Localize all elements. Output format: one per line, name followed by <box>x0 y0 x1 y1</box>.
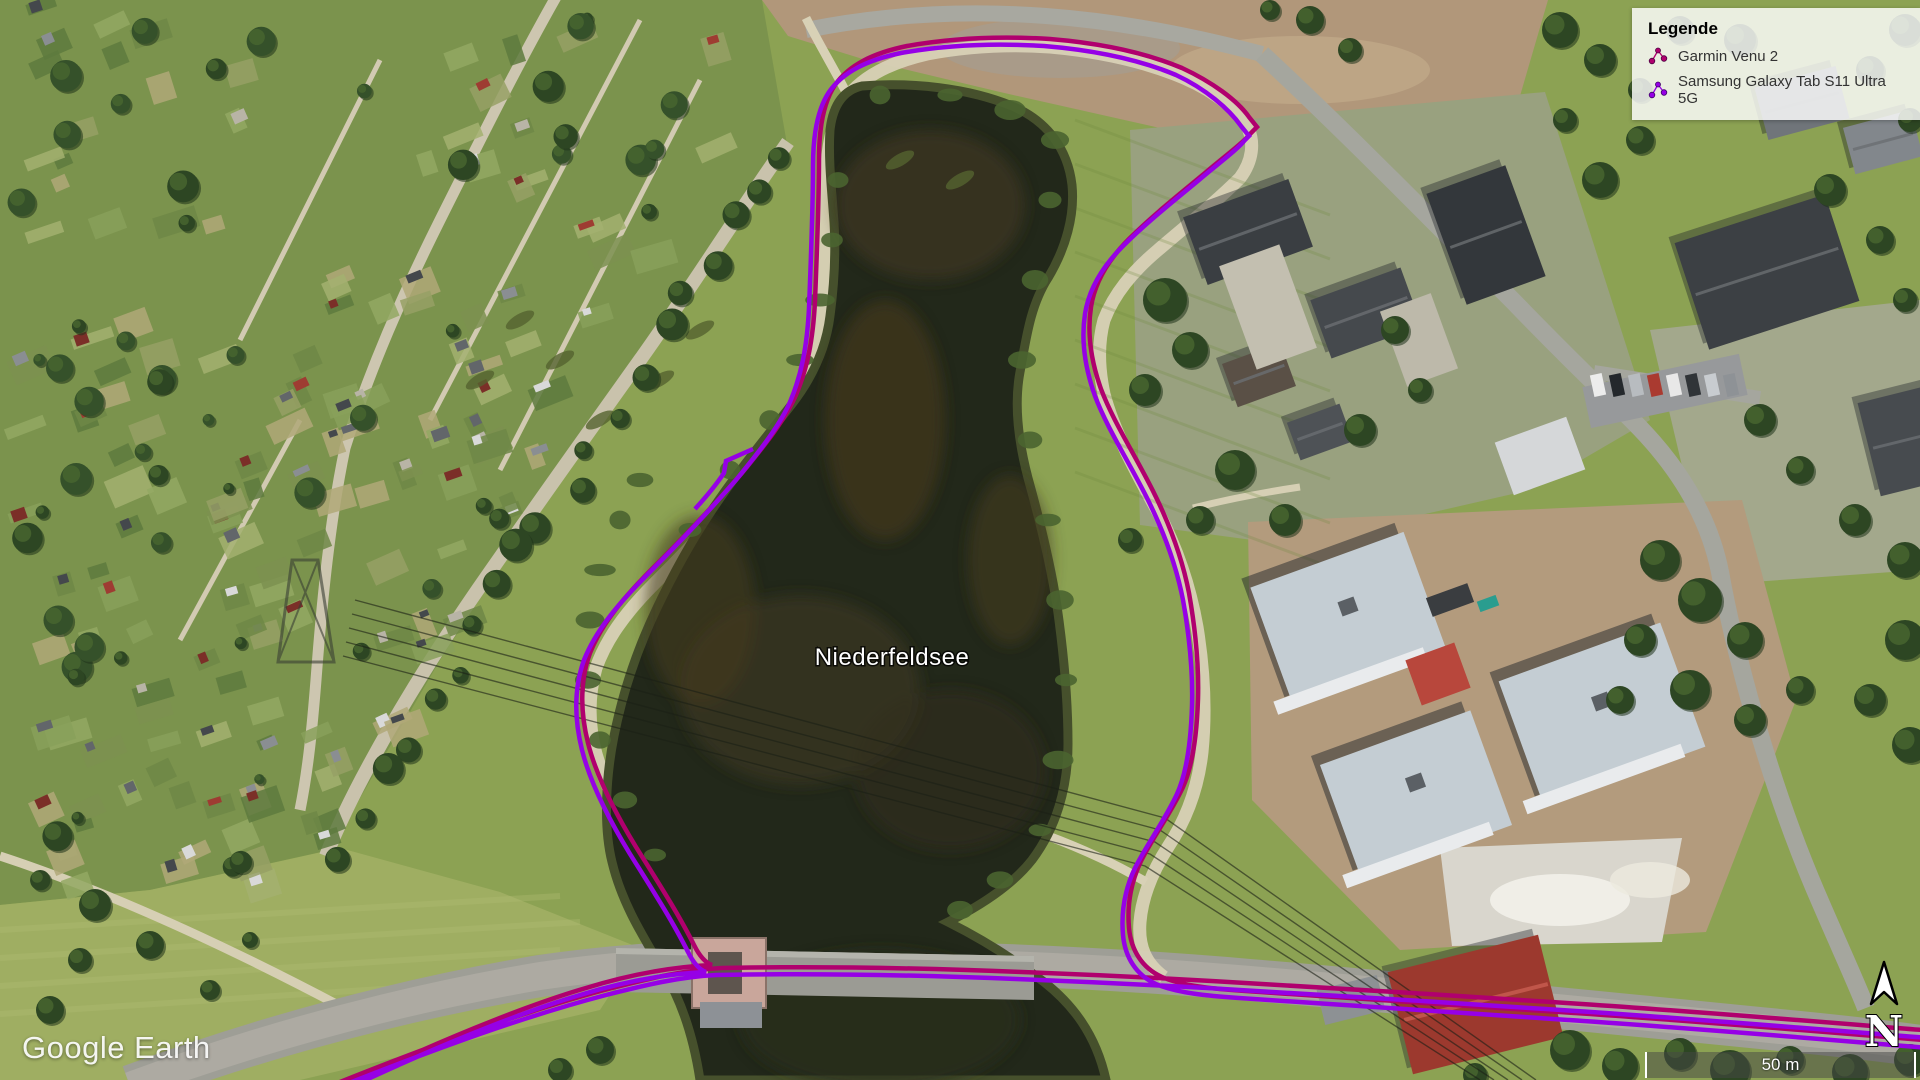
tree-highlight <box>1890 545 1910 565</box>
tree-highlight <box>224 484 230 490</box>
tree-highlight <box>1626 626 1644 644</box>
tree-highlight <box>204 415 211 422</box>
tree-highlight <box>1816 176 1834 194</box>
tree-highlight <box>1746 406 1764 424</box>
tree-highlight <box>150 466 161 477</box>
tree-highlight <box>450 152 467 169</box>
tree-highlight <box>231 853 243 865</box>
tree-highlight <box>1218 453 1240 475</box>
shore-bush <box>1008 351 1036 368</box>
tree-highlight <box>34 355 41 362</box>
shore-bush <box>937 88 962 101</box>
tree-highlight <box>357 810 368 821</box>
tree-highlight <box>38 998 53 1013</box>
tree-highlight <box>725 203 740 218</box>
shore-bush <box>644 849 666 862</box>
tree-highlight <box>46 608 62 624</box>
tree-highlight <box>1841 506 1859 524</box>
tree-highlight <box>202 982 213 993</box>
tree-highlight <box>1585 165 1605 185</box>
tree-highlight <box>1146 281 1170 305</box>
tree-highlight <box>1608 688 1623 703</box>
tree-highlight <box>663 93 678 108</box>
tree-highlight <box>77 389 93 405</box>
tree-highlight <box>81 891 99 909</box>
google-earth-viewport: Niederfeldsee Legende Garmin Venu 2 Sams… <box>0 0 1920 1080</box>
tree-highlight <box>10 191 25 206</box>
shore-bush <box>987 871 1014 888</box>
tree-highlight <box>1175 335 1195 355</box>
tree-highlight <box>646 141 657 152</box>
shore-bush <box>1041 131 1069 149</box>
tree-highlight <box>464 617 475 628</box>
tree-highlight <box>569 15 584 30</box>
legend-item-samsung: Samsung Galaxy Tab S11 Ultra 5G <box>1648 73 1904 107</box>
shore-bush <box>1046 590 1074 610</box>
tree-highlight <box>73 320 81 328</box>
lake-name-label: Niederfeldsee <box>815 644 970 671</box>
tree-highlight <box>572 479 586 493</box>
tree-highlight <box>243 933 252 942</box>
shore-bush <box>584 564 616 576</box>
tree-highlight <box>522 515 539 532</box>
tree-highlight <box>477 499 486 508</box>
tree-highlight <box>749 181 762 194</box>
tree-highlight <box>63 465 81 483</box>
tree-highlight <box>628 147 645 164</box>
tree-highlight <box>136 445 145 454</box>
shore-bush <box>627 473 654 487</box>
legend-title: Legende <box>1648 19 1904 39</box>
north-arrow-icon <box>1871 962 1897 1004</box>
tree-highlight <box>112 95 123 106</box>
tree-highlight <box>180 216 189 225</box>
tree-highlight <box>1188 508 1203 523</box>
tree-highlight <box>1868 228 1883 243</box>
tree-highlight <box>635 366 650 381</box>
shore-bush <box>613 791 637 808</box>
legend-item-label: Garmin Venu 2 <box>1678 48 1778 65</box>
legend-item-garmin: Garmin Venu 2 <box>1648 47 1904 65</box>
tree-highlight <box>1788 678 1803 693</box>
tree-highlight <box>588 1038 603 1053</box>
tree-highlight <box>502 531 520 549</box>
tree-highlight <box>134 20 148 34</box>
tree-highlight <box>72 813 79 820</box>
shore-bush <box>1055 674 1077 686</box>
tree-highlight <box>1643 543 1665 565</box>
shore-bush <box>1022 270 1049 290</box>
tree-highlight <box>550 1060 563 1073</box>
tree-highlight <box>69 670 78 679</box>
tree-highlight <box>659 311 676 328</box>
tree-highlight <box>1788 458 1803 473</box>
tree-highlight <box>1298 8 1313 23</box>
shore-bush <box>1042 751 1073 769</box>
tree-highlight <box>170 173 188 191</box>
tree-highlight <box>706 253 722 269</box>
shore-bush <box>589 731 611 748</box>
track-icon-garmin <box>1648 47 1668 65</box>
tree-highlight <box>358 85 366 93</box>
tree-highlight <box>149 371 163 385</box>
tree-highlight <box>45 823 61 839</box>
tree-highlight <box>327 849 341 863</box>
tree-highlight <box>48 356 63 371</box>
tree-highlight <box>14 525 31 542</box>
tree-highlight <box>138 933 153 948</box>
tree-highlight <box>485 572 500 587</box>
tree-highlight <box>118 333 128 343</box>
tree-highlight <box>642 205 651 214</box>
tree-highlight <box>352 407 366 421</box>
compass[interactable]: N <box>1856 958 1912 1056</box>
tree-highlight <box>375 755 392 772</box>
shore-bush <box>609 511 630 530</box>
tree-highlight <box>207 60 218 71</box>
tree-highlight <box>1730 625 1750 645</box>
tree-highlight <box>1555 110 1568 123</box>
shore-bush <box>947 901 973 919</box>
tree-highlight <box>576 443 586 453</box>
scale-bar-label: 50 m <box>1762 1055 1800 1075</box>
tree-highlight <box>1545 15 1565 35</box>
tree-highlight <box>56 123 71 138</box>
tree-highlight <box>447 325 455 333</box>
tree-highlight <box>236 638 243 645</box>
shore-bush <box>994 100 1025 120</box>
tree-highlight <box>1856 686 1874 704</box>
tree-highlight <box>1736 706 1754 724</box>
tree-highlight <box>1895 730 1915 750</box>
tree-highlight <box>770 149 782 161</box>
shore-bush <box>1035 514 1061 527</box>
tree-highlight <box>1271 506 1289 524</box>
tree-highlight <box>37 506 44 513</box>
tree-highlight <box>1131 376 1149 394</box>
tree-highlight <box>612 410 623 421</box>
tree-highlight <box>1605 1051 1625 1071</box>
tree-highlight <box>249 29 265 45</box>
tree-highlight <box>1410 380 1423 393</box>
tree-highlight <box>32 872 43 883</box>
tree-highlight <box>1340 40 1353 53</box>
shore-bush <box>1038 192 1061 208</box>
tree-highlight <box>424 580 434 590</box>
tree-highlight <box>115 652 122 659</box>
tree-highlight <box>670 283 684 297</box>
tree-highlight <box>1673 673 1695 695</box>
tree-highlight <box>1628 128 1643 143</box>
north-label: N <box>1865 1007 1903 1056</box>
tree-highlight <box>1888 623 1910 645</box>
satellite-imagery <box>0 0 1920 1080</box>
tree-highlight <box>1262 2 1273 13</box>
tree-highlight <box>1586 46 1604 64</box>
tree-highlight <box>77 634 93 650</box>
tree-highlight <box>152 534 163 545</box>
shore-bush <box>821 233 843 248</box>
tree-highlight <box>535 73 552 90</box>
tree-highlight <box>228 347 238 357</box>
tree-highlight <box>398 739 412 753</box>
tree-highlight <box>1346 416 1364 434</box>
tree-highlight <box>555 126 568 139</box>
tree-highlight <box>53 62 71 80</box>
tree-highlight <box>297 480 314 497</box>
shore-bush <box>827 172 848 188</box>
tree-highlight <box>1120 530 1133 543</box>
tree-highlight <box>1383 318 1398 333</box>
google-earth-watermark: Google Earth <box>22 1030 211 1066</box>
legend-panel: Legende Garmin Venu 2 Samsung Galaxy Tab… <box>1632 8 1920 120</box>
shore-bush <box>1018 432 1043 449</box>
tree-highlight <box>1681 581 1705 605</box>
map-canvas[interactable]: Niederfeldsee <box>0 0 1920 1080</box>
tree-highlight <box>426 690 438 702</box>
tree-highlight <box>1553 1033 1575 1055</box>
legend-item-label: Samsung Galaxy Tab S11 Ultra 5G <box>1678 73 1904 107</box>
tree-highlight <box>1895 290 1908 303</box>
track-icon-samsung <box>1648 81 1668 99</box>
tree-highlight <box>255 775 261 781</box>
tree-highlight <box>70 950 83 963</box>
shore-bush <box>870 86 891 105</box>
